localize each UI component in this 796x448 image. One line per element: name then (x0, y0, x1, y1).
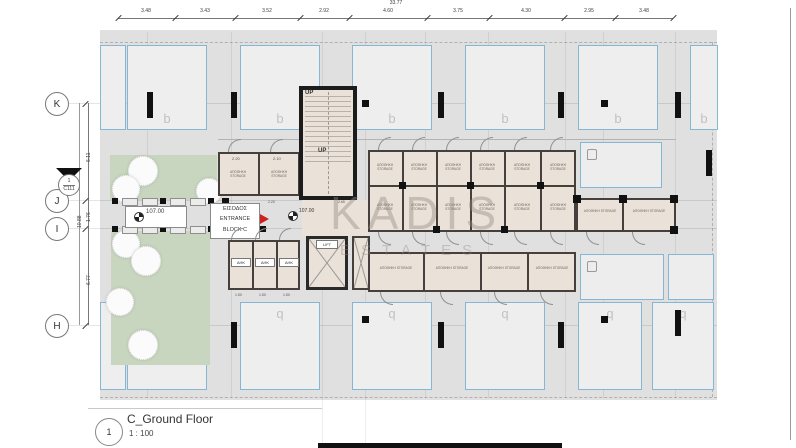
parking-letter: b (128, 111, 206, 126)
column (558, 322, 564, 348)
dim-left: 1.76 (86, 212, 92, 222)
tree (128, 330, 158, 360)
parking-stall: q (240, 302, 320, 390)
parking-letter: q (579, 306, 641, 321)
column (601, 316, 608, 323)
dim-line (79, 103, 80, 325)
parking-stall (100, 45, 126, 130)
column (438, 92, 444, 118)
dim-top: 3.43 (200, 8, 210, 14)
grid-bubble-label: I (56, 224, 59, 235)
dim-left: 6.77 (86, 275, 92, 285)
ahk-label: AHK (279, 258, 299, 267)
dim-top: 3.48 (141, 8, 151, 14)
paver (190, 226, 206, 234)
stair-centerline (328, 92, 329, 194)
parking-stall: b (578, 45, 658, 130)
room-label: ΑΠΟΘΗΚΗ STORAGE (438, 163, 468, 171)
column (706, 150, 712, 176)
ahk-dim: 1.50 (283, 293, 290, 297)
bay-fixture-icon (587, 261, 597, 272)
title-separator-line (88, 408, 322, 409)
column (438, 322, 444, 348)
stair-up-label: UP (318, 148, 326, 154)
bay-fixture-icon (587, 149, 597, 160)
ahk-label: AHK (255, 258, 275, 267)
room-label: ΑΠΟΘΗΚΗ STORAGE (628, 209, 670, 213)
paver (190, 198, 206, 206)
dim-top: 2.95 (584, 8, 594, 14)
parking-letter: q (653, 306, 713, 321)
level-value: 107.00 (299, 208, 314, 214)
column (231, 92, 237, 118)
room-label: ΑΠΟΘΗΚΗ STORAGE (222, 170, 254, 178)
dim-top: 2.92 (319, 8, 329, 14)
column (670, 226, 678, 234)
dim-top: 3.75 (453, 8, 463, 14)
bollard (112, 226, 118, 232)
bollard (112, 198, 118, 204)
room-label: ΑΠΟΘΗΚΗ STORAGE (506, 203, 538, 211)
column (558, 92, 564, 118)
parking-letter: b (579, 111, 657, 126)
column (573, 195, 581, 203)
grid-bubble-H: H (45, 314, 69, 338)
dim-top: 3.48 (639, 8, 649, 14)
dim-top: 4.30 (521, 8, 531, 14)
entrance-label-gr: ΕΙΣΟΔΟΣ (211, 204, 259, 214)
wall (527, 252, 529, 292)
paver (122, 198, 138, 206)
paver (142, 198, 158, 206)
room-label: ΑΠΟΘΗΚΗ STORAGE (542, 163, 574, 171)
dim-tick (670, 15, 676, 21)
grid-bubble-I: I (45, 217, 69, 241)
room-label: ΑΠΟΘΗΚΗ STORAGE (542, 203, 574, 211)
room-label: ΑΠΟΘΗΚΗ STORAGE (263, 170, 295, 178)
column (362, 100, 369, 107)
entrance-arrow-icon (260, 214, 269, 224)
dim-left-overall: 10.88 (77, 215, 83, 228)
bollard (160, 198, 166, 204)
floor-plan-sheet: b b b b b b q q q q q q (0, 0, 796, 448)
boundary-line-bottom (100, 397, 717, 398)
room-label: ΑΠΟΘΗΚΗ STORAGE (472, 163, 502, 171)
lift-label: LIFT (316, 240, 338, 249)
entrance-label-en: ENTRANCE (211, 214, 259, 224)
dim-line (118, 18, 673, 19)
view-scale: 1 : 100 (129, 429, 153, 438)
column (601, 100, 608, 107)
column (675, 310, 681, 336)
section-marker-bubble: 1 C111 (58, 174, 80, 196)
ahk-dim: 1.50 (259, 293, 266, 297)
corridor-wall (218, 139, 676, 140)
parking-stall: b (352, 45, 432, 130)
sheet-border-line (790, 8, 791, 440)
wall (258, 152, 260, 196)
boundary-line-top (100, 42, 717, 43)
grid-bubble-label: K (54, 99, 61, 110)
parking-letter: b (691, 111, 717, 126)
dim-tick (82, 323, 88, 329)
column (362, 316, 369, 323)
section-number: 1 (63, 178, 75, 186)
dim-top: 4.60 (383, 8, 393, 14)
column (619, 195, 627, 203)
ahk-dim: 1.50 (235, 293, 242, 297)
section-label: C111 (63, 186, 74, 193)
wall (252, 240, 254, 290)
parking-bay (580, 142, 662, 188)
ahk-label: AHK (231, 258, 251, 267)
room-label: ΑΠΟΘΗΚΗ STORAGE (531, 266, 573, 270)
parking-stall: b (465, 45, 545, 130)
column (147, 92, 153, 118)
parking-letter: q (466, 306, 544, 321)
watermark-subtext: ESTATES (340, 242, 483, 259)
dim-overall-top: 33.77 (390, 0, 403, 6)
parking-stall: q (652, 302, 714, 390)
hall-dim: 2.20 (268, 200, 275, 204)
watermark-text: KADIS (330, 186, 503, 240)
room-label: ΑΠΟΘΗΚΗ STORAGE (580, 209, 620, 213)
room-label: ΑΠΟΘΗΚΗ STORAGE (484, 266, 524, 270)
grid-bubble-label: H (53, 321, 60, 332)
wall (622, 198, 624, 232)
grid-bubble-K: K (45, 92, 69, 116)
room-label: ΑΠΟΘΗΚΗ STORAGE (374, 266, 418, 270)
grid-bubble-label: J (55, 196, 60, 207)
room-label: ΑΠΟΘΗΚΗ STORAGE (370, 163, 400, 171)
wall (276, 240, 278, 290)
room-label: ΑΠΟΘΗΚΗ STORAGE (429, 266, 475, 270)
stair-up-label: UP (305, 90, 313, 96)
parking-letter: b (353, 111, 431, 126)
room-dim: 2.10 (273, 156, 281, 161)
parking-letter: b (466, 111, 544, 126)
storage-room (576, 198, 676, 232)
room-label: ΑΠΟΘΗΚΗ STORAGE (506, 163, 538, 171)
paver (170, 198, 186, 206)
parking-letter: q (241, 306, 319, 321)
parking-bay (668, 254, 714, 300)
parking-stall: b (127, 45, 207, 130)
benchmark-icon (134, 212, 144, 222)
level-value: 107.00 (146, 209, 164, 215)
column (231, 322, 237, 348)
dim-top: 3.52 (262, 8, 272, 14)
view-number: 1 (106, 427, 111, 437)
parking-stall: b (690, 45, 718, 130)
column (670, 195, 678, 203)
parking-stall: q (578, 302, 642, 390)
room-label: ΑΠΟΘΗΚΗ STORAGE (404, 163, 434, 171)
benchmark-icon (288, 211, 298, 221)
room-dim: 2.20 (232, 156, 240, 161)
view-number-bubble: 1 (95, 418, 123, 446)
column (537, 182, 544, 189)
parking-bay (580, 254, 664, 300)
bottom-bar (318, 443, 562, 448)
view-title: C_Ground Floor (127, 412, 213, 426)
parking-stall: q (465, 302, 545, 390)
tree (106, 288, 134, 316)
dim-left: 6.11 (86, 153, 92, 162)
tree (131, 246, 161, 276)
column (675, 92, 681, 118)
